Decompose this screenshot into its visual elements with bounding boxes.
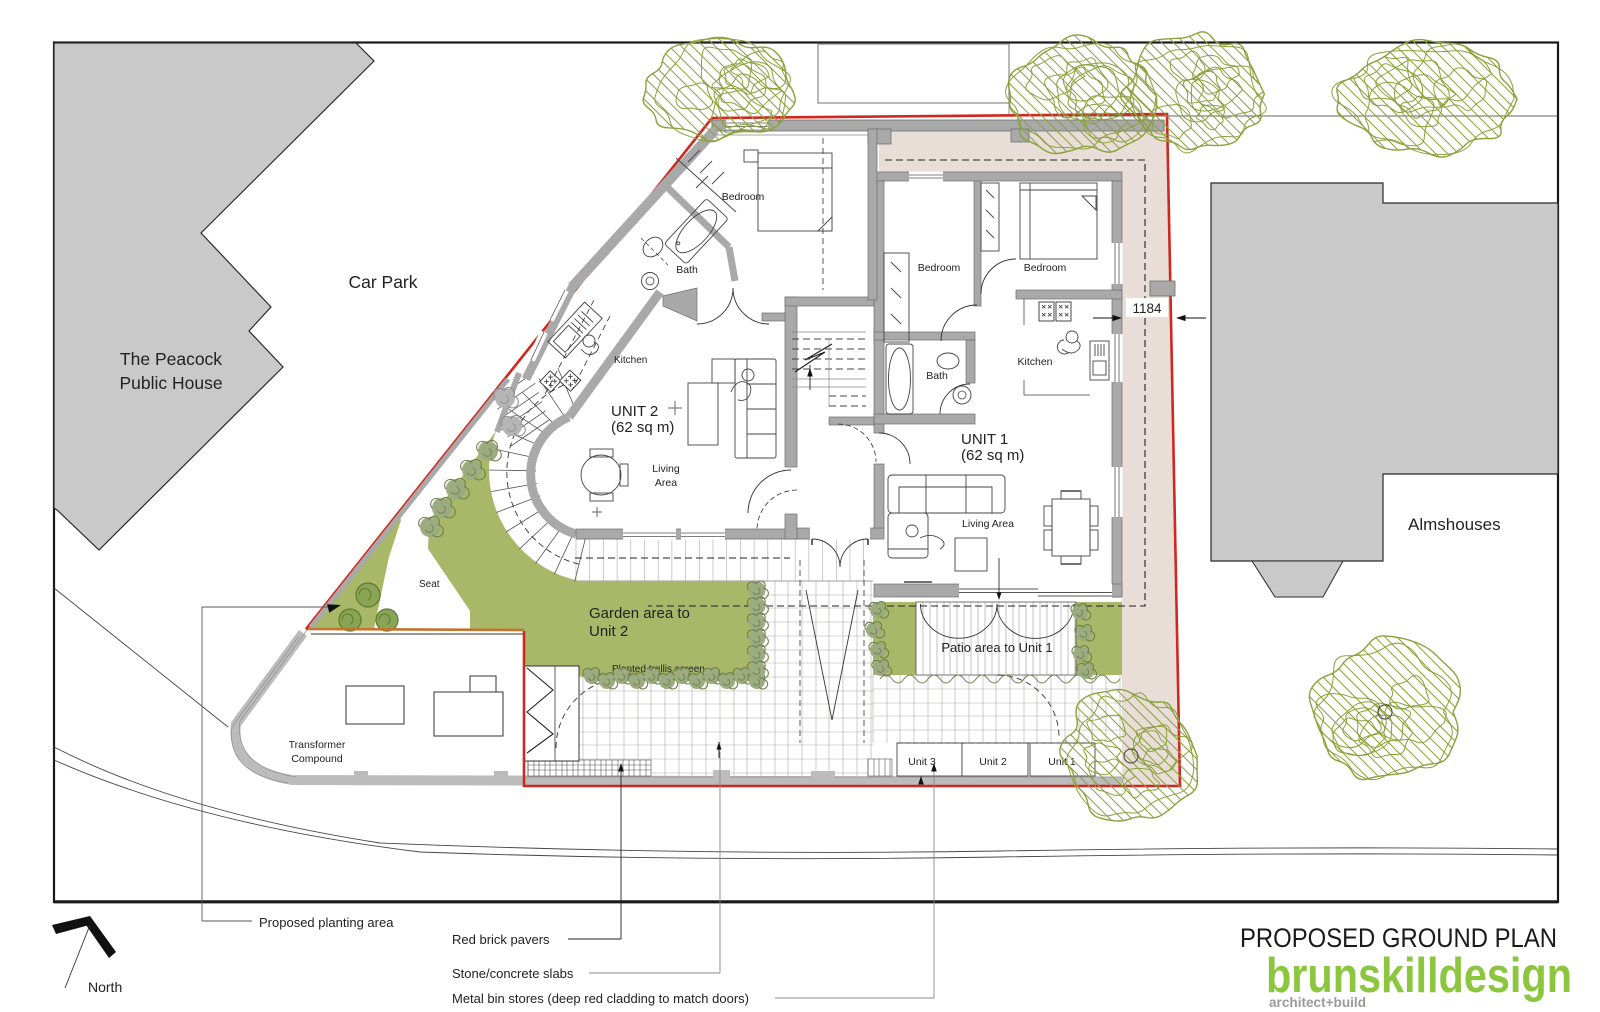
svg-text:(62 sq m): (62 sq m) <box>961 447 1024 464</box>
svg-text:Red brick pavers: Red brick pavers <box>452 932 550 947</box>
svg-text:Living Area: Living Area <box>962 518 1014 530</box>
svg-text:(62 sq m): (62 sq m) <box>611 419 674 436</box>
svg-text:UNIT 2: UNIT 2 <box>611 403 658 420</box>
svg-text:Garden area to: Garden area to <box>589 605 690 622</box>
svg-text:Proposed planting area: Proposed planting area <box>259 915 394 930</box>
svg-text:Kitchen: Kitchen <box>1017 356 1052 368</box>
svg-text:Public House: Public House <box>119 373 222 393</box>
svg-text:Unit 2: Unit 2 <box>979 756 1007 768</box>
svg-text:Living: Living <box>652 463 680 475</box>
svg-text:Bedroom: Bedroom <box>918 262 961 274</box>
svg-text:Compound: Compound <box>291 753 343 765</box>
svg-text:Seat: Seat <box>419 579 440 590</box>
svg-text:Car Park: Car Park <box>348 272 417 292</box>
svg-text:Area: Area <box>655 477 677 489</box>
svg-text:Transformer: Transformer <box>289 739 346 751</box>
svg-text:Almshouses: Almshouses <box>1408 515 1501 534</box>
svg-text:Kitchen: Kitchen <box>614 355 647 366</box>
svg-text:North: North <box>88 979 122 995</box>
svg-text:Stone/concrete slabs: Stone/concrete slabs <box>452 966 574 981</box>
svg-text:UNIT 1: UNIT 1 <box>961 431 1008 448</box>
svg-text:Bedroom: Bedroom <box>722 191 765 203</box>
svg-text:architect+build: architect+build <box>1269 995 1366 1010</box>
svg-text:Patio area to Unit 1: Patio area to Unit 1 <box>941 640 1052 655</box>
svg-text:Bath: Bath <box>676 264 698 276</box>
svg-text:Bedroom: Bedroom <box>1024 262 1067 274</box>
svg-text:Unit 2: Unit 2 <box>589 623 628 640</box>
svg-text:Unit 3: Unit 3 <box>908 756 936 768</box>
svg-text:Bath: Bath <box>926 370 948 382</box>
svg-text:Metal bin stores (deep red cla: Metal bin stores (deep red cladding to m… <box>452 991 749 1006</box>
svg-text:The Peacock: The Peacock <box>120 349 222 369</box>
svg-text:1184: 1184 <box>1132 301 1162 316</box>
